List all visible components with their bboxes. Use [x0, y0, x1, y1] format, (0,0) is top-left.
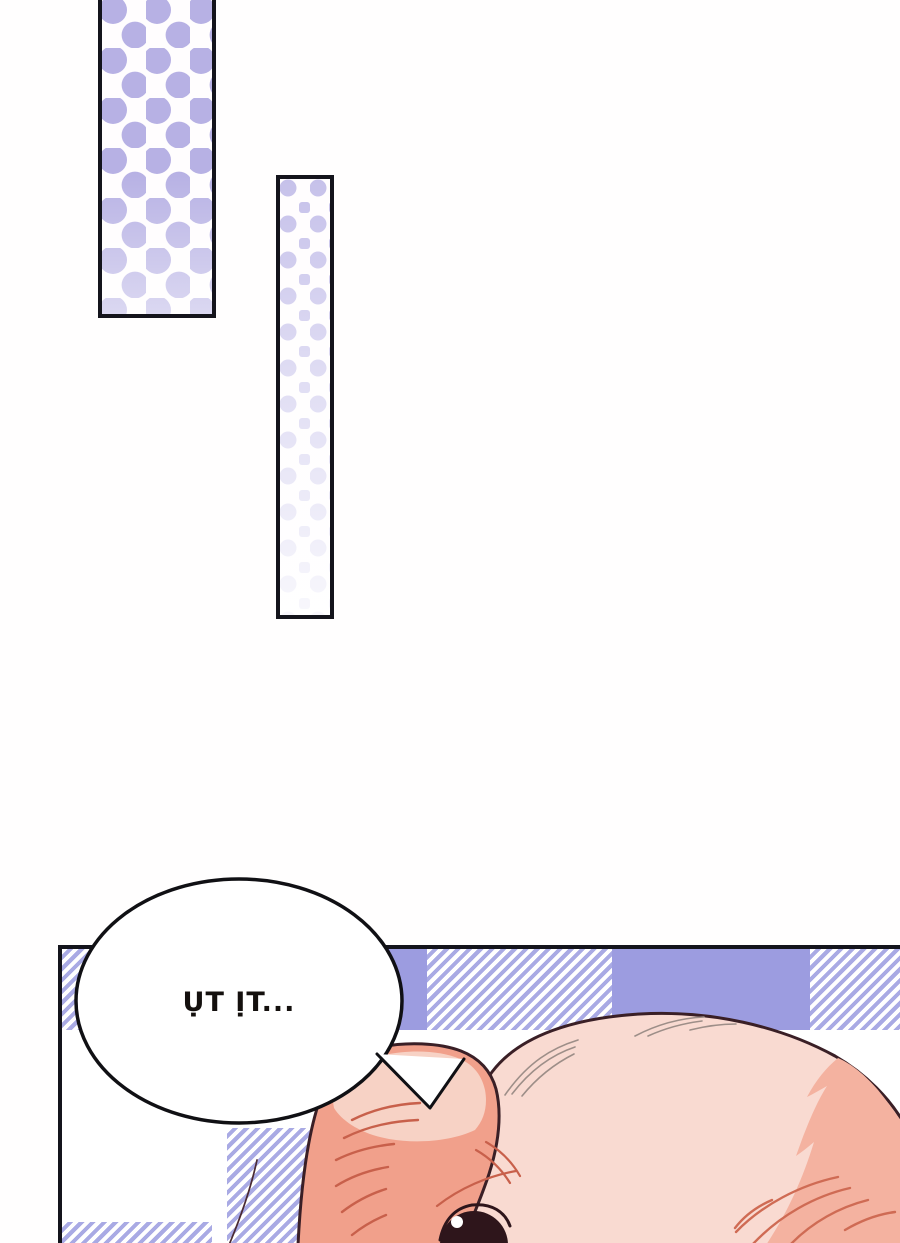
polka-dot-pattern-small — [280, 179, 330, 615]
hair-strand — [229, 1160, 257, 1243]
polka-dot-pattern-large — [102, 0, 212, 314]
speech-bubble-tail — [377, 1054, 464, 1108]
speech-bubble-text: ỤT ỊT... — [89, 986, 389, 1020]
comic-page: ỤT ỊT... — [0, 0, 900, 1243]
eye-highlight — [451, 1216, 463, 1228]
panel-polka-dots-large — [98, 0, 216, 318]
panel-polka-dots-small — [276, 175, 334, 619]
